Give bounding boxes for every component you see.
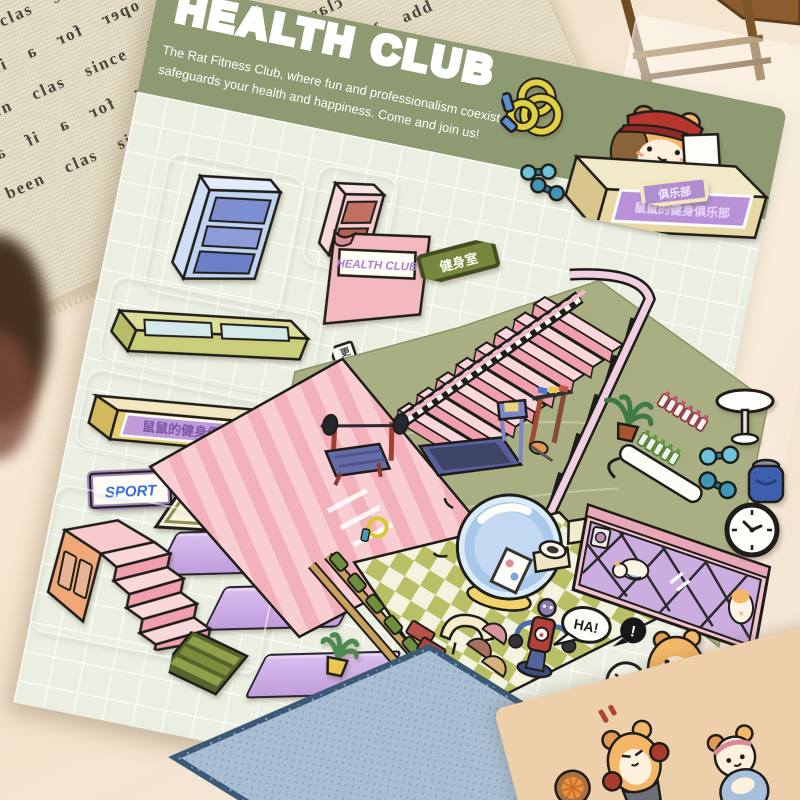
small-bottle (361, 528, 370, 541)
photo-of-sticker-sheets: the mus been clas since note oper for a … (0, 0, 800, 800)
orange-barrel (552, 767, 594, 800)
headband-hamster (705, 723, 774, 800)
boxing-hamster (584, 693, 681, 800)
chair-seat (711, 0, 800, 24)
wall-clock (722, 500, 782, 560)
round-table (714, 388, 778, 450)
